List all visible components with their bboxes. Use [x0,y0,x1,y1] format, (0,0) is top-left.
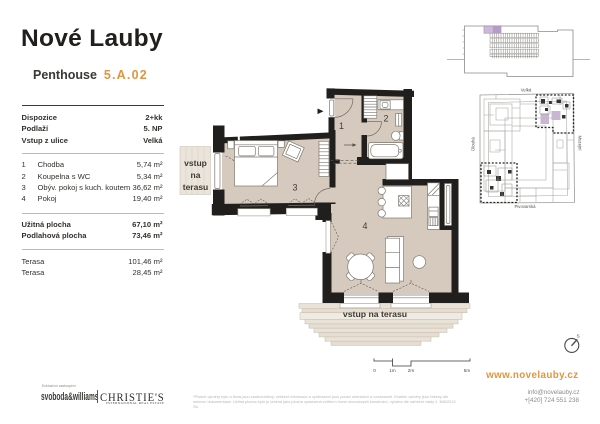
svg-text:2m: 2m [408,368,415,373]
svg-text:4: 4 [363,221,368,231]
svg-text:5m: 5m [464,368,471,373]
svg-text:vstup: vstup [184,158,207,168]
svg-text:Pivovarská: Pivovarská [514,204,536,209]
svg-text:Dlouhá: Dlouhá [470,137,475,151]
svg-text:Velká: Velká [521,88,532,93]
svg-text:vstup na terasu: vstup na terasu [343,309,407,319]
svg-text:0: 0 [373,368,376,373]
svg-text:na: na [191,170,201,180]
svg-text:2: 2 [384,114,389,124]
svg-text:S: S [577,334,580,340]
svg-text:1m: 1m [389,368,396,373]
svg-text:Muzejní: Muzejní [578,135,583,151]
svg-text:terasu: terasu [183,182,209,192]
svg-text:3: 3 [293,183,298,193]
svg-text:1: 1 [339,121,344,131]
